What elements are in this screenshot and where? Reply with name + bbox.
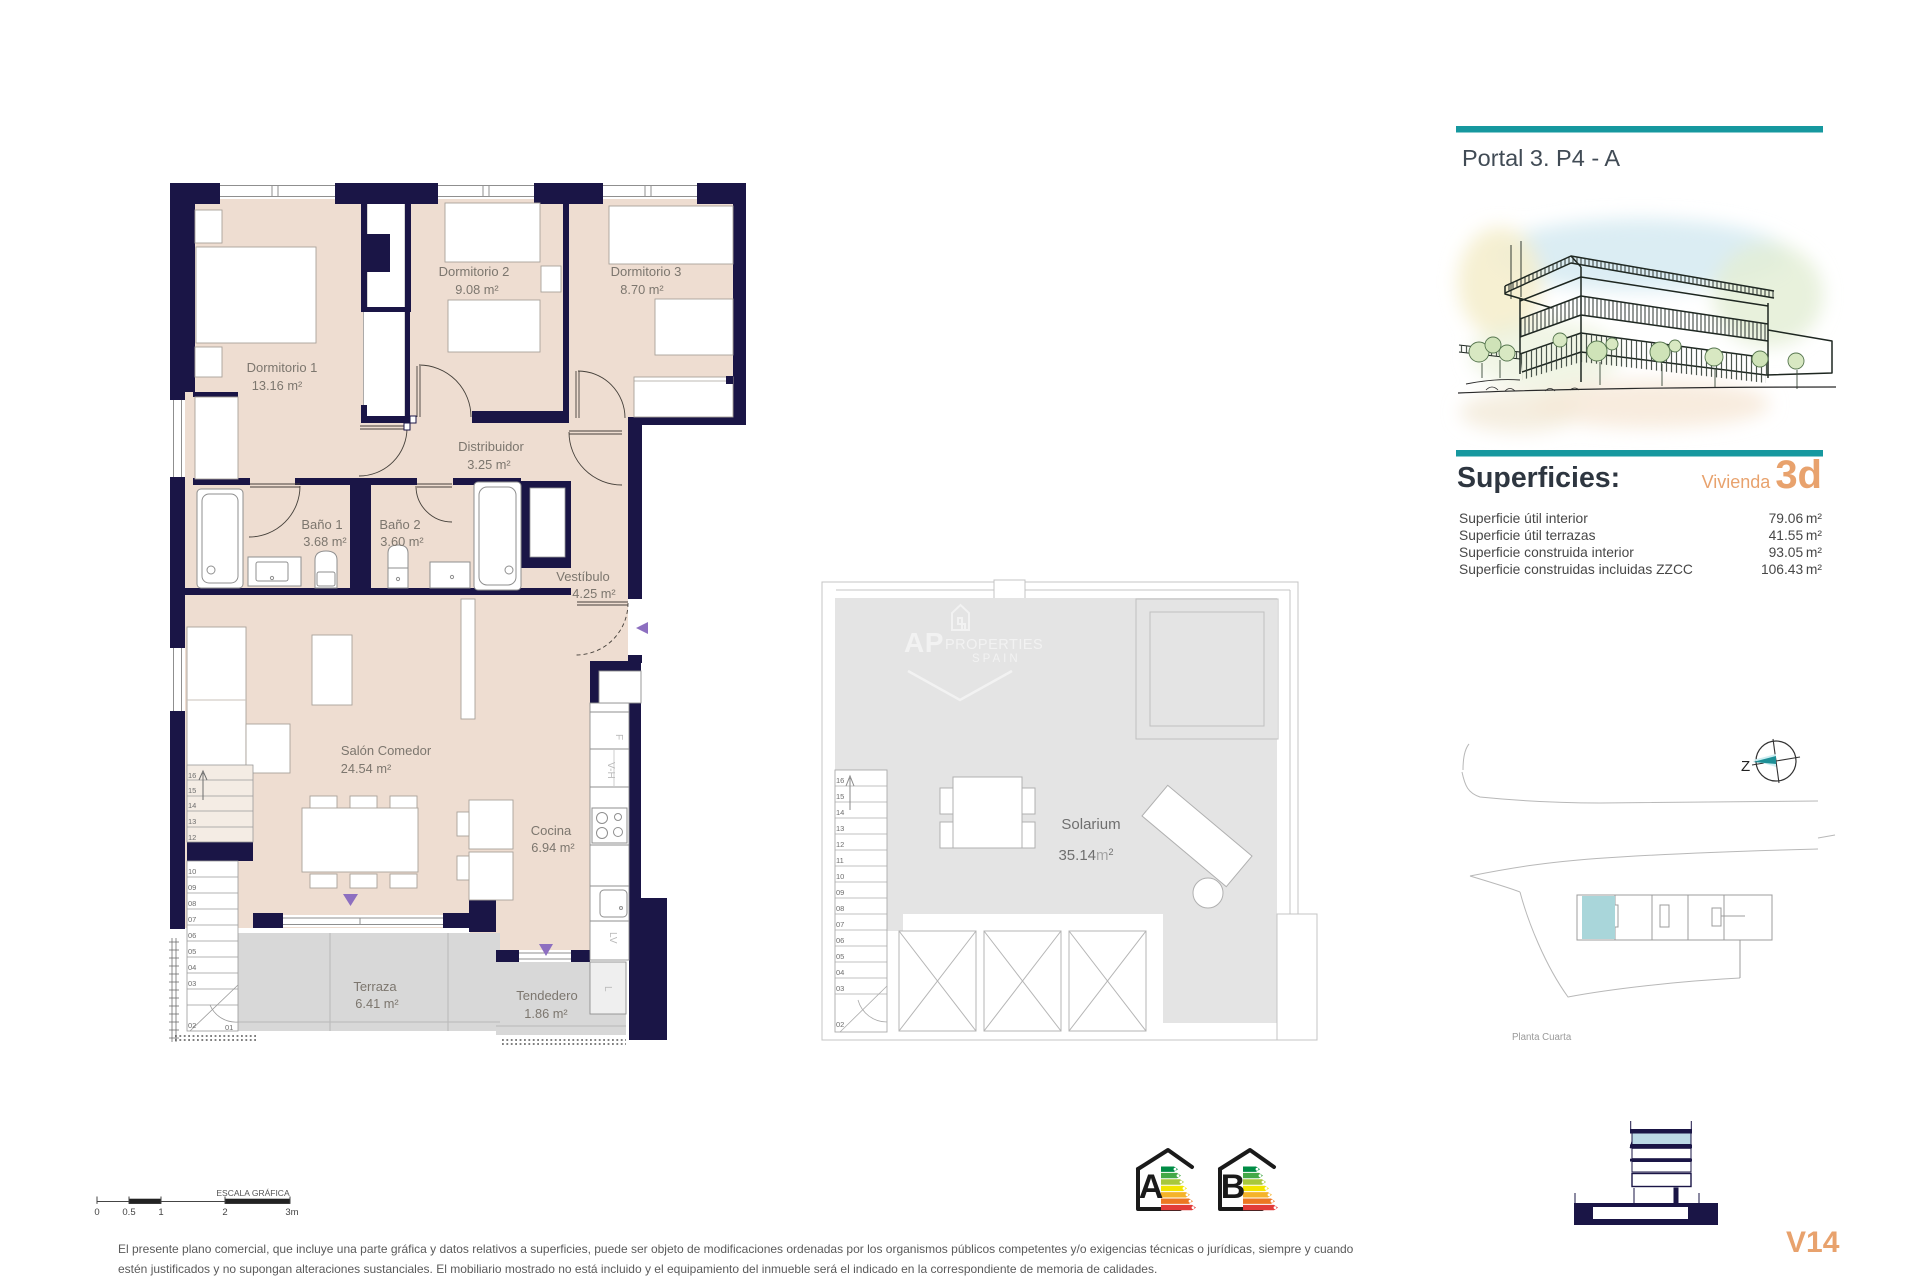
svg-text:07: 07 [188,915,196,924]
svg-text:02: 02 [188,1021,196,1030]
svg-text:A: A [1139,1168,1164,1206]
svg-text:15: 15 [188,786,196,795]
svg-text:Superficie construida interior: Superficie construida interior [1459,545,1634,560]
svg-text:AP: AP [904,627,944,658]
svg-text:11: 11 [836,856,844,865]
svg-text:08: 08 [188,899,196,908]
svg-text:Superficie construidas incluid: Superficie construidas incluidas ZZCC [1459,562,1693,577]
svg-text:1: 1 [158,1207,163,1218]
svg-text:04: 04 [188,963,196,972]
svg-text:24.54 m²: 24.54 m² [341,761,392,776]
svg-text:B: B [1221,1168,1246,1206]
svg-text:Vestíbulo: Vestíbulo [556,569,610,584]
svg-text:93.05 m²: 93.05 m² [1769,545,1823,560]
svg-text:Dormitorio 3: Dormitorio 3 [611,264,682,279]
svg-text:05: 05 [188,947,196,956]
svg-text:12: 12 [836,840,844,849]
svg-text:09: 09 [836,888,844,897]
svg-text:PROPERTIES: PROPERTIES [945,637,1043,653]
svg-text:02: 02 [836,1020,844,1029]
svg-text:Salón Comedor: Salón Comedor [341,743,432,758]
svg-text:Tendedero: Tendedero [516,988,577,1003]
svg-text:Distribuidor: Distribuidor [458,439,524,454]
svg-text:03: 03 [836,984,844,993]
svg-text:06: 06 [188,931,196,940]
svg-text:Dormitorio 1: Dormitorio 1 [247,360,318,375]
svg-text:V-H: V-H [605,762,616,779]
svg-text:Terraza: Terraza [353,979,397,994]
svg-text:04: 04 [836,968,844,977]
svg-text:SPAIN: SPAIN [972,653,1021,665]
svg-text:Dormitorio 2: Dormitorio 2 [439,264,510,279]
svg-text:F: F [613,734,624,740]
svg-text:estén justificados y no supong: estén justificados y no supongan alterac… [118,1262,1157,1276]
svg-text:LV: LV [607,932,618,944]
svg-text:06: 06 [836,936,844,945]
svg-text:Solarium: Solarium [1061,816,1120,833]
svg-text:3.68 m²: 3.68 m² [303,534,347,549]
svg-text:12: 12 [188,833,196,842]
svg-text:01: 01 [225,1023,233,1032]
svg-text:3.60 m²: 3.60 m² [380,534,424,549]
svg-text:14: 14 [188,801,196,810]
svg-text:4.25 m²: 4.25 m² [572,586,616,601]
svg-text:3m: 3m [285,1207,298,1218]
svg-text:13: 13 [188,817,196,826]
svg-text:15: 15 [836,792,844,801]
svg-text:Portal 3. P4 - A: Portal 3. P4 - A [1462,145,1620,171]
svg-text:13: 13 [836,824,844,833]
svg-text:6.41 m²: 6.41 m² [355,996,399,1011]
svg-text:ESCALA GRÁFICA: ESCALA GRÁFICA [216,1188,290,1198]
svg-text:Planta Cuarta: Planta Cuarta [1512,1032,1572,1043]
svg-text:79.06 m²: 79.06 m² [1769,511,1823,526]
svg-text:03: 03 [188,979,196,988]
svg-text:Z: Z [1741,758,1750,775]
svg-text:08: 08 [836,904,844,913]
svg-text:106.43 m²: 106.43 m² [1761,562,1822,577]
svg-text:10: 10 [836,872,844,881]
svg-text:Superficie útil interior: Superficie útil interior [1459,511,1588,526]
svg-text:35.14m2: 35.14m2 [1058,847,1113,864]
svg-text:L: L [602,986,613,992]
svg-text:10: 10 [188,867,196,876]
svg-text:13.16 m²: 13.16 m² [252,378,303,393]
svg-text:Cocina: Cocina [531,823,572,838]
svg-text:Superficies:: Superficies: [1457,462,1620,494]
svg-text:0: 0 [94,1207,99,1218]
svg-text:0.5: 0.5 [122,1207,135,1218]
svg-text:Vivienda 3d: Vivienda 3d [1702,453,1822,497]
svg-text:El presente plano comercial, q: El presente plano comercial, que incluye… [118,1242,1354,1256]
svg-text:Superficie útil terrazas: Superficie útil terrazas [1459,528,1596,543]
svg-text:8.70 m²: 8.70 m² [620,282,664,297]
svg-text:2: 2 [222,1207,227,1218]
svg-text:3.25 m²: 3.25 m² [467,457,511,472]
svg-text:6.94 m²: 6.94 m² [531,840,575,855]
svg-text:Baño 1: Baño 1 [301,517,342,532]
svg-text:1.86 m²: 1.86 m² [524,1006,568,1021]
svg-text:V14: V14 [1786,1226,1840,1259]
svg-text:09: 09 [188,883,196,892]
svg-text:14: 14 [836,808,844,817]
svg-text:16: 16 [188,771,196,780]
svg-text:16: 16 [836,776,844,785]
svg-text:05: 05 [836,952,844,961]
svg-text:9.08 m²: 9.08 m² [455,282,499,297]
svg-text:Baño 2: Baño 2 [379,517,420,532]
svg-text:07: 07 [836,920,844,929]
svg-text:41.55 m²: 41.55 m² [1769,528,1823,543]
